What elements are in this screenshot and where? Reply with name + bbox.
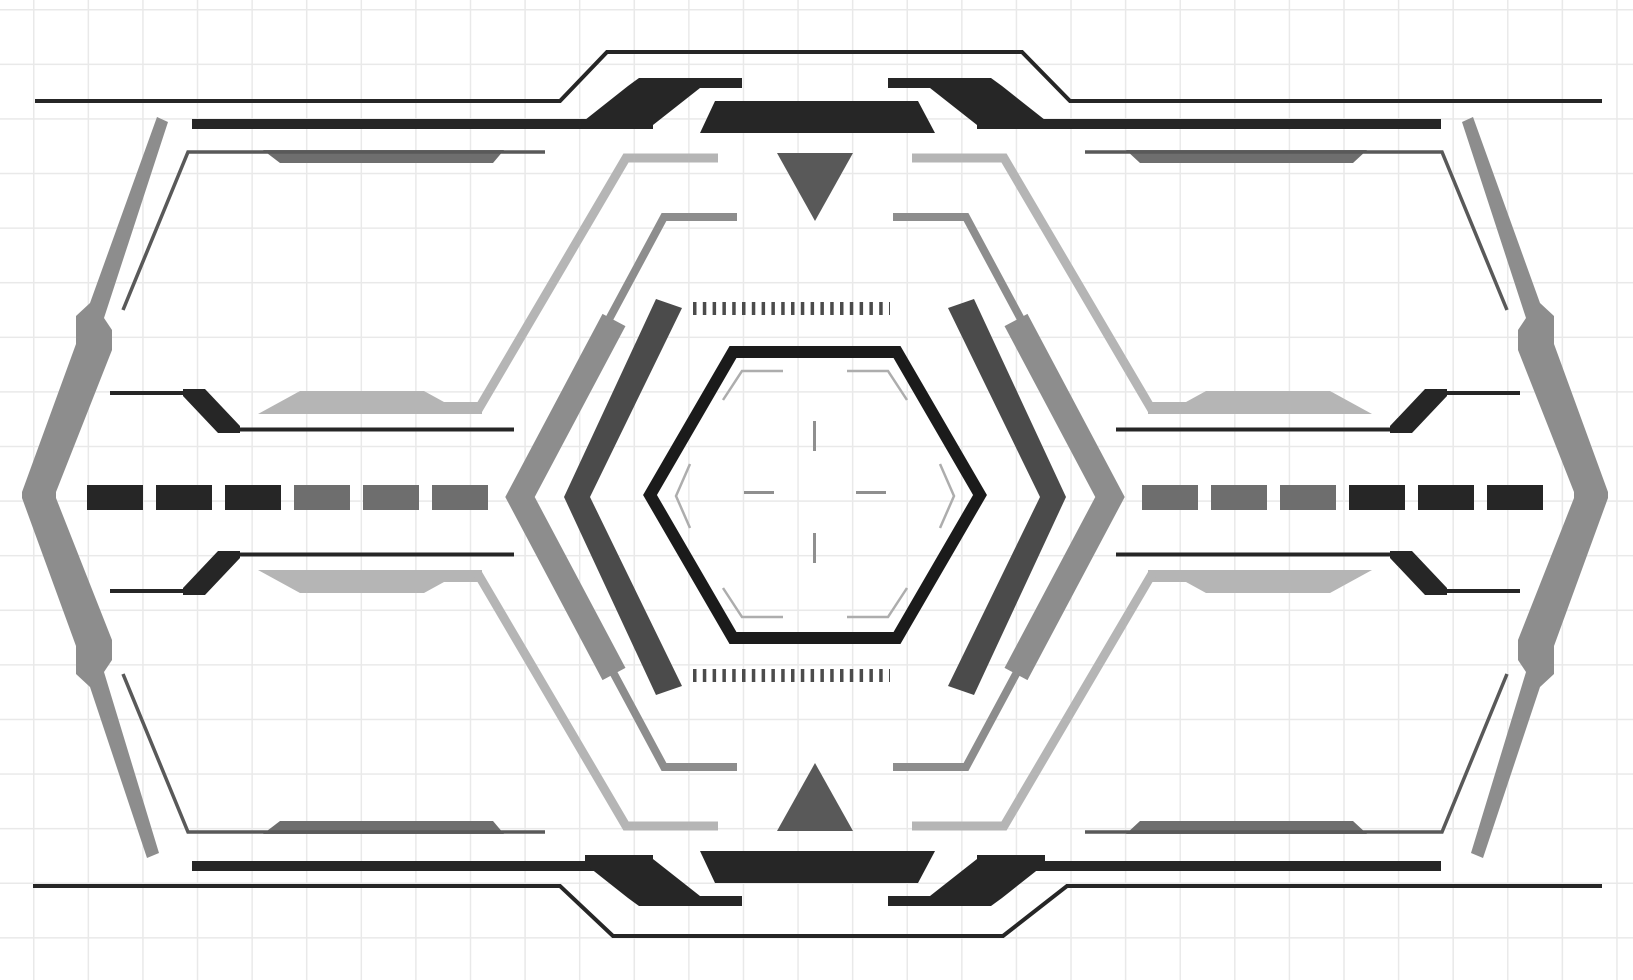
bottom-bar-left: [192, 861, 645, 871]
dash-left-4: [294, 485, 350, 510]
inner-frame-corner-bottom-left: [123, 674, 545, 832]
outer-outline-bottom: [33, 886, 1602, 936]
dash-left-2: [156, 485, 212, 510]
dash-right-5: [1418, 485, 1474, 510]
inner-frame-corner-top-right: [1085, 152, 1507, 310]
hex-accent-bottom-left: [723, 588, 783, 617]
dash-left-1: [87, 485, 143, 510]
hex-accent-top-left: [723, 371, 783, 400]
hex-accent-right: [940, 464, 954, 528]
panel-elbow-top-right: [1390, 389, 1447, 433]
center-trapezoid-bottom: [700, 851, 935, 883]
dash-right-2: [1211, 485, 1267, 510]
dash-left-3: [225, 485, 281, 510]
hud-frame-graphic: [0, 0, 1633, 980]
hud-canvas: [0, 0, 1633, 980]
dash-left-6: [432, 485, 488, 510]
panel-elbow-bottom-left: [183, 551, 240, 595]
center-trapezoid-top: [700, 101, 935, 133]
panel-elbow-top-left: [183, 389, 240, 433]
light-ring-bottom-right: [912, 574, 1152, 826]
dash-right-1: [1142, 485, 1198, 510]
inner-frame-corner-bottom-right: [1085, 674, 1507, 832]
top-bar-right: [985, 119, 1441, 129]
up-arrow[interactable]: [777, 763, 853, 831]
down-arrow[interactable]: [777, 153, 853, 221]
panel-bar-bottom-right: [1148, 570, 1372, 593]
dash-right-6: [1487, 485, 1543, 510]
bottom-bar-right: [985, 861, 1441, 871]
panel-bar-bottom-left: [258, 570, 482, 593]
panel-elbow-bottom-right: [1390, 551, 1447, 595]
inner-frame-corner-top-left: [123, 152, 545, 310]
panel-bar-top-right: [1148, 391, 1372, 414]
panel-bar-top-left: [258, 391, 482, 414]
hex-accent-left: [676, 464, 690, 528]
hex-accent-bottom-right: [847, 588, 907, 617]
hex-accent-top-right: [847, 371, 907, 400]
top-bar-left: [192, 119, 645, 129]
light-ring-bottom-left: [478, 574, 718, 826]
dash-left-5: [363, 485, 419, 510]
dash-right-4: [1349, 485, 1405, 510]
hexagon-reticle: [650, 352, 980, 638]
outer-outline-top: [35, 52, 1602, 101]
dash-right-3: [1280, 485, 1336, 510]
